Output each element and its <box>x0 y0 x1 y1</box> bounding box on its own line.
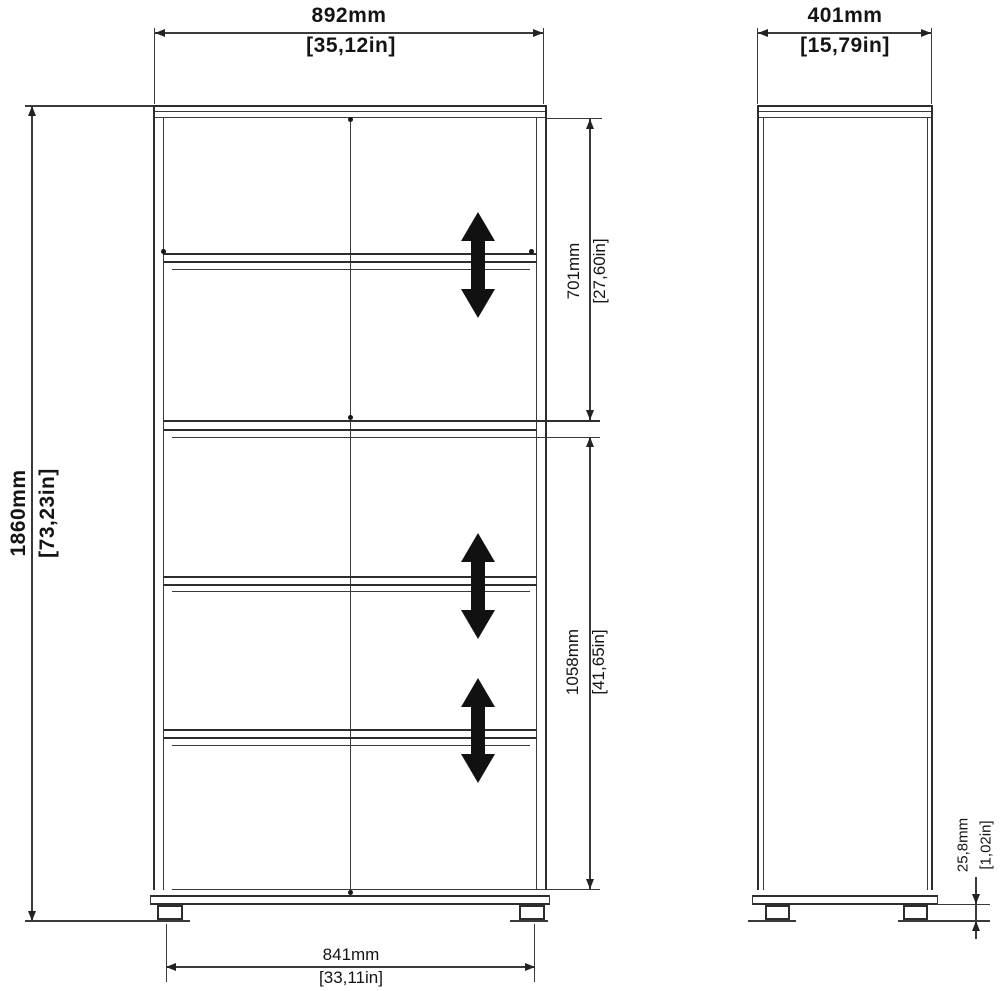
dim-label-in: [1,02in] <box>978 820 995 869</box>
dim-extension-line <box>534 924 535 982</box>
arrowhead-left-icon <box>758 29 768 37</box>
dim-label-mm: 401mm <box>808 4 883 28</box>
arrow-down-head <box>461 754 495 783</box>
arrowhead-down-icon <box>586 410 594 420</box>
front-plinth-left-cap <box>150 895 151 905</box>
side-right-inner-edge <box>927 117 928 890</box>
arrowhead-up-icon <box>28 106 36 116</box>
side-top-mid-line <box>757 111 933 112</box>
front-left-foot <box>157 905 183 920</box>
arrow-stem <box>471 239 485 291</box>
front-top-mid-line <box>153 111 547 112</box>
shelf-2-top <box>163 420 600 422</box>
arrowhead-down-icon <box>972 894 980 904</box>
front-plinth-bottom <box>150 903 550 905</box>
dim-label-mm: 1058mm <box>563 629 583 695</box>
front-floor-line-left <box>25 920 190 922</box>
shelf-2-underline <box>172 437 600 438</box>
bookcase-technical-drawing: 892mm [35,12in] 401mm [15,79in] 1860mm [… <box>0 0 1000 991</box>
dim-extension-line <box>757 28 758 104</box>
adjustable-shelf-arrow-icon <box>461 212 495 318</box>
arrowhead-left-icon <box>155 29 165 37</box>
arrow-stem <box>471 705 485 756</box>
dim-label-mm: 25,8mm <box>955 818 972 872</box>
arrowhead-right-icon <box>533 29 543 37</box>
arrowhead-up-icon <box>972 921 980 931</box>
cam-dot-shelf1-left <box>161 249 166 254</box>
arrow-up-head <box>461 212 495 241</box>
adjustable-shelf-arrow-icon <box>461 678 495 783</box>
dim-extension-line <box>543 28 544 104</box>
dim-label-in: [33,11in] <box>319 968 383 988</box>
dim-label-mm: 1860mm <box>7 469 31 556</box>
dim-label-in: [35,12in] <box>306 34 396 58</box>
arrow-up-head <box>461 678 495 707</box>
dim-label-in: [27,60in] <box>590 238 610 303</box>
side-plinth-left-cap <box>752 895 753 905</box>
dim-label-mm: 841mm <box>323 945 380 965</box>
front-right-outer-edge <box>545 105 547 890</box>
dim-extension-line <box>25 105 153 107</box>
front-left-inner-edge <box>163 117 164 890</box>
side-right-outer-edge <box>931 105 933 890</box>
cam-dot-middle <box>348 415 353 420</box>
side-top-inner-line <box>757 117 933 118</box>
front-plinth-right-cap <box>549 895 550 905</box>
center-divider <box>350 118 351 890</box>
dim-line <box>31 106 33 921</box>
dim-extension-line <box>935 904 990 905</box>
arrow-down-head <box>461 610 495 639</box>
arrow-stem <box>471 560 485 612</box>
arrowhead-down-icon <box>586 879 594 889</box>
dim-label-in: [41,65in] <box>589 629 609 694</box>
cam-dot-bottom <box>348 890 353 895</box>
dim-label-mm: 892mm <box>312 4 387 28</box>
front-bottom-underline <box>172 889 600 890</box>
dim-extension-line <box>154 28 155 104</box>
side-top-edge <box>757 105 933 107</box>
side-right-foot <box>903 905 928 920</box>
front-plinth-top <box>150 895 550 897</box>
front-right-foot <box>519 905 545 920</box>
dim-extension-line <box>166 924 167 982</box>
dim-label-mm: 701mm <box>564 243 584 300</box>
arrowhead-right-icon <box>921 29 931 37</box>
arrowhead-left-icon <box>166 963 176 971</box>
cam-dot-shelf1-right <box>529 249 534 254</box>
dim-label-in: [15,79in] <box>800 34 890 58</box>
dim-label-in: [73,23in] <box>36 468 60 558</box>
cam-dot-top <box>348 117 353 122</box>
side-plinth-top <box>752 895 938 897</box>
side-left-outer-edge <box>757 105 759 890</box>
front-floor-line-right <box>510 920 548 922</box>
front-top-edge <box>153 105 547 107</box>
adjustable-shelf-arrow-icon <box>461 533 495 639</box>
side-left-foot <box>765 905 790 920</box>
shelf-2-bottom <box>163 429 537 431</box>
side-floor-line-left <box>748 920 796 922</box>
arrowhead-up-icon <box>586 119 594 129</box>
side-left-inner-edge <box>763 117 764 890</box>
front-left-outer-edge <box>153 105 155 890</box>
arrowhead-right-icon <box>525 963 535 971</box>
arrow-down-head <box>461 289 495 318</box>
arrowhead-up-icon <box>586 437 594 447</box>
front-right-inner-edge <box>536 117 537 890</box>
dim-extension-line <box>931 28 932 104</box>
arrow-up-head <box>461 533 495 562</box>
arrowhead-down-icon <box>28 911 36 921</box>
